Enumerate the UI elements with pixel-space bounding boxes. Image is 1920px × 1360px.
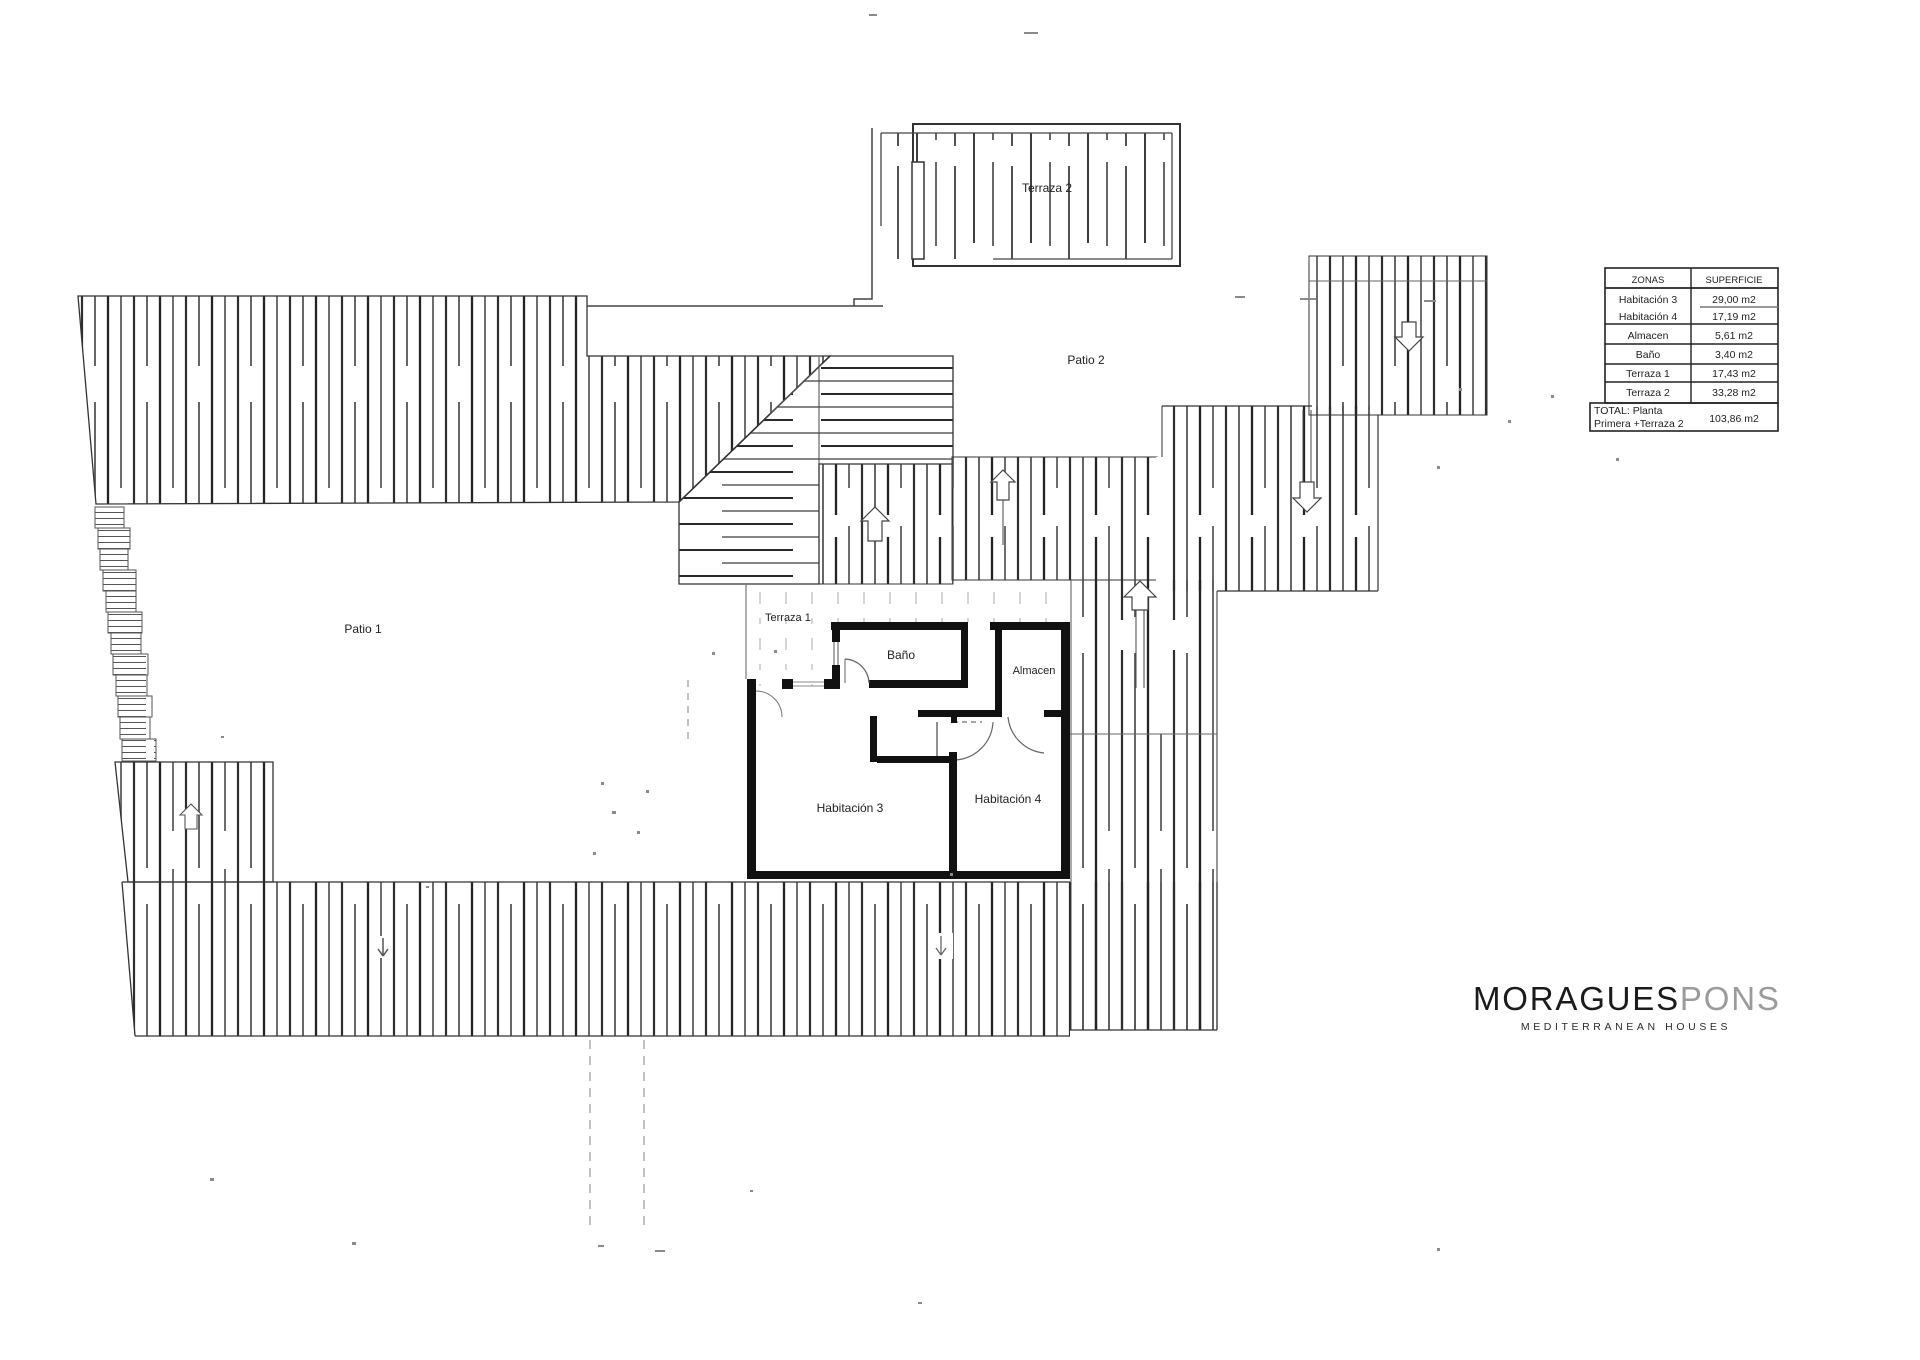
svg-text:17,19 m2: 17,19 m2	[1712, 311, 1756, 323]
svg-text:Patio 1: Patio 1	[344, 622, 382, 636]
svg-text:MORAGUESPONS: MORAGUESPONS	[1473, 980, 1781, 1017]
svg-text:29,00 m2: 29,00 m2	[1712, 294, 1756, 306]
svg-text:Terraza 2: Terraza 2	[1626, 387, 1670, 399]
svg-text:Habitación 4: Habitación 4	[1619, 311, 1678, 323]
svg-text:TOTAL: Planta: TOTAL: Planta	[1594, 405, 1663, 417]
svg-text:103,86 m2: 103,86 m2	[1709, 413, 1759, 425]
svg-text:5,61 m2: 5,61 m2	[1715, 330, 1753, 342]
svg-text:Baño: Baño	[887, 648, 915, 662]
svg-text:33,28 m2: 33,28 m2	[1712, 387, 1756, 399]
svg-text:Baño: Baño	[1636, 349, 1661, 361]
svg-text:Terraza 1: Terraza 1	[1626, 368, 1670, 380]
svg-text:ZONAS: ZONAS	[1632, 275, 1665, 286]
svg-text:Almacen: Almacen	[1628, 330, 1669, 342]
svg-text:Habitación 3: Habitación 3	[817, 801, 884, 815]
svg-text:Terraza 2: Terraza 2	[1022, 181, 1072, 195]
svg-text:SUPERFICIE: SUPERFICIE	[1705, 275, 1762, 286]
svg-text:17,43 m2: 17,43 m2	[1712, 368, 1756, 380]
svg-text:Patio 2: Patio 2	[1067, 353, 1105, 367]
svg-text:Almacen: Almacen	[1013, 665, 1056, 677]
svg-text:Terraza 1: Terraza 1	[765, 612, 811, 624]
svg-text:MEDITERRANEAN HOUSES: MEDITERRANEAN HOUSES	[1521, 1021, 1731, 1033]
svg-text:Primera +Terraza 2: Primera +Terraza 2	[1594, 418, 1684, 430]
svg-text:Habitación 3: Habitación 3	[1619, 294, 1678, 306]
svg-text:Habitación 4: Habitación 4	[975, 792, 1042, 806]
svg-text:3,40 m2: 3,40 m2	[1715, 349, 1753, 361]
